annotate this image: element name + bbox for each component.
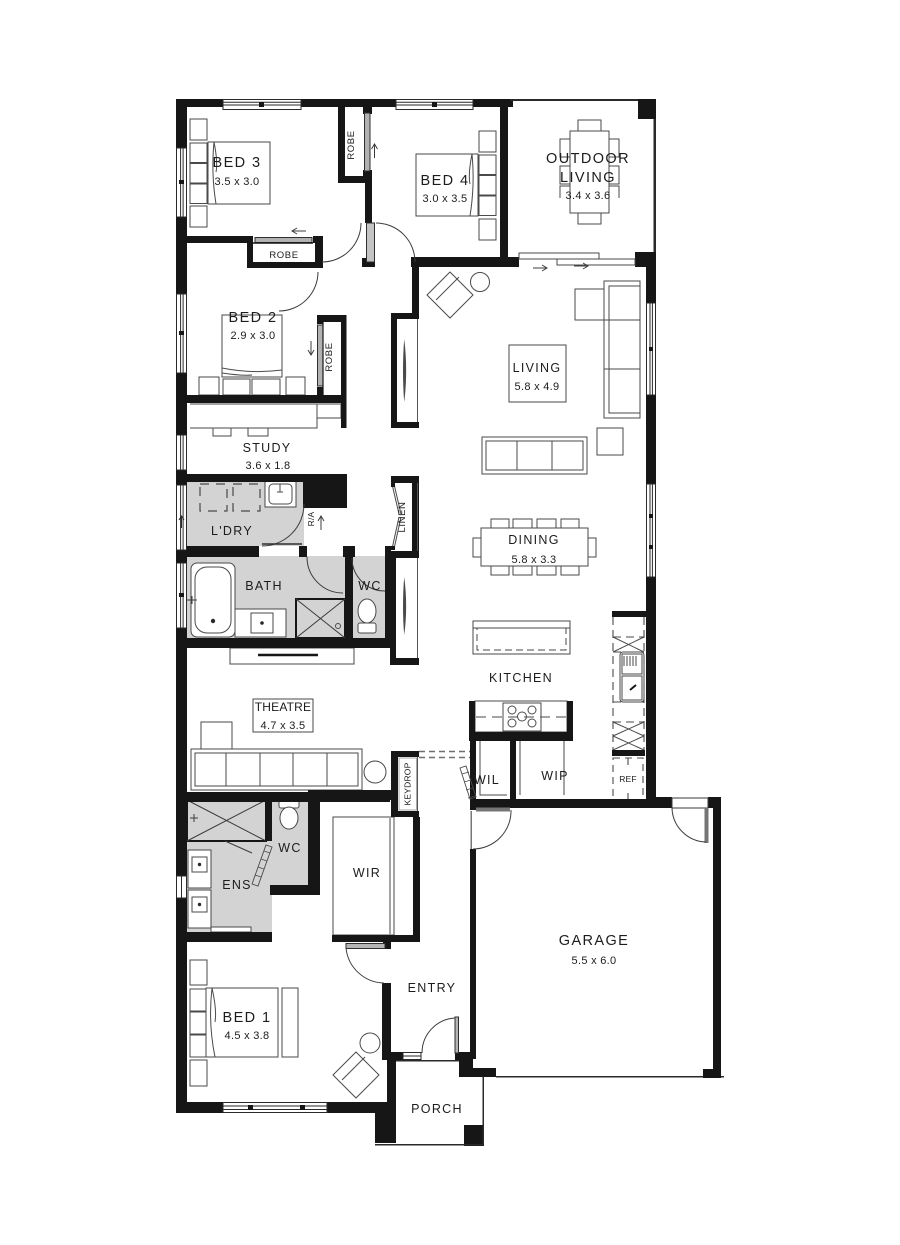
svg-text:KEYDROP: KEYDROP: [403, 762, 413, 805]
svg-text:WC: WC: [278, 841, 301, 855]
svg-text:WC: WC: [358, 579, 381, 593]
svg-text:LIVING: LIVING: [560, 170, 616, 186]
svg-text:LINEN: LINEN: [397, 502, 408, 533]
svg-text:WIP: WIP: [541, 769, 569, 783]
svg-text:BED 2: BED 2: [229, 310, 278, 326]
svg-text:PORCH: PORCH: [411, 1102, 463, 1116]
svg-text:BATH: BATH: [245, 579, 283, 593]
svg-text:THEATRE: THEATRE: [255, 700, 312, 714]
svg-text:OUTDOOR: OUTDOOR: [546, 151, 630, 167]
svg-text:5.8 x 4.9: 5.8 x 4.9: [515, 381, 560, 393]
svg-text:ENS: ENS: [222, 878, 252, 892]
svg-text:ROBE: ROBE: [346, 130, 357, 159]
svg-text:STUDY: STUDY: [243, 441, 292, 455]
svg-text:BED 4: BED 4: [421, 173, 470, 189]
svg-text:5.8 x 3.3: 5.8 x 3.3: [512, 554, 557, 566]
svg-text:DINING: DINING: [508, 533, 560, 547]
svg-text:WIR: WIR: [353, 866, 381, 880]
svg-text:3.6 x 1.8: 3.6 x 1.8: [246, 460, 291, 472]
svg-text:GARAGE: GARAGE: [559, 933, 629, 949]
svg-text:LIVING: LIVING: [513, 361, 562, 375]
svg-text:ROBE: ROBE: [324, 342, 335, 371]
svg-text:BED 1: BED 1: [223, 1010, 272, 1026]
svg-text:ENTRY: ENTRY: [408, 981, 457, 995]
svg-text:WIL: WIL: [474, 773, 500, 787]
svg-text:3.5 x 3.0: 3.5 x 3.0: [215, 176, 260, 188]
svg-text:L'DRY: L'DRY: [211, 524, 253, 538]
svg-text:3.4 x 3.6: 3.4 x 3.6: [566, 190, 611, 202]
svg-text:2.9 x 3.0: 2.9 x 3.0: [231, 330, 276, 342]
svg-text:4.5 x 3.8: 4.5 x 3.8: [225, 1030, 270, 1042]
svg-text:ROBE: ROBE: [269, 250, 298, 261]
svg-text:5.5 x 6.0: 5.5 x 6.0: [572, 955, 617, 967]
svg-text:4.7 x 3.5: 4.7 x 3.5: [261, 720, 306, 732]
svg-text:REF: REF: [619, 774, 637, 784]
svg-text:R/A: R/A: [306, 511, 316, 526]
svg-text:3.0 x 3.5: 3.0 x 3.5: [423, 193, 468, 205]
svg-text:BED 3: BED 3: [213, 155, 262, 171]
svg-text:KITCHEN: KITCHEN: [489, 671, 553, 685]
